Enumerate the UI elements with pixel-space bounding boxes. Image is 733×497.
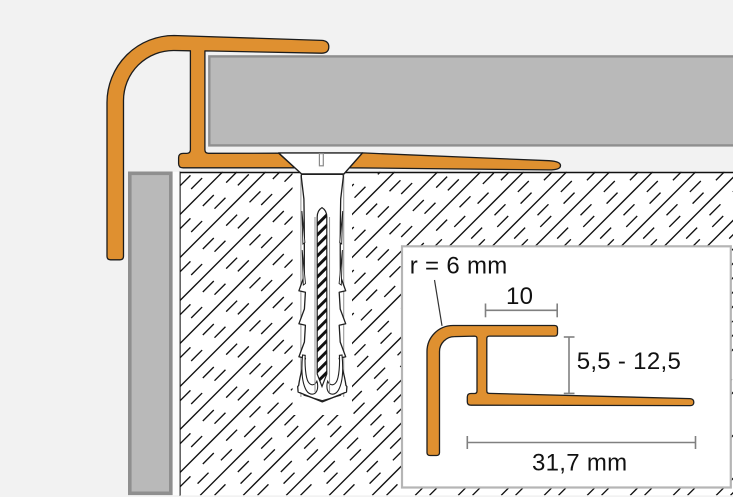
svg-text:r = 6 mm: r = 6 mm	[410, 252, 508, 279]
svg-text:10: 10	[506, 283, 533, 310]
svg-text:31,7 mm: 31,7 mm	[532, 450, 627, 477]
svg-text:5,5 - 12,5: 5,5 - 12,5	[577, 348, 681, 375]
